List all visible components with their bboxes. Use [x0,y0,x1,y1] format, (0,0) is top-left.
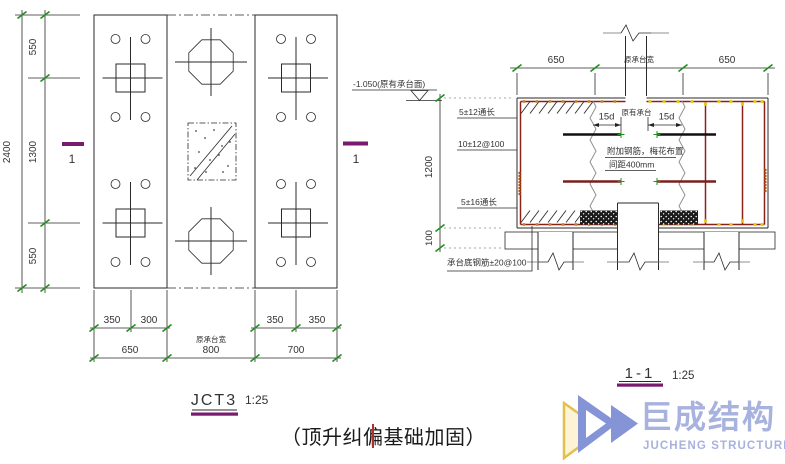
dim-700: 700 [288,345,305,356]
svg-text:原有承台: 原有承台 [622,107,652,117]
logo-subtitle: JUCHENG STRUCTURE [643,440,785,452]
note-added-rebar: 附加钢筋，梅花布置 [607,146,684,156]
note-original-cap-width-plan: 原承台宽 [196,334,226,344]
dim-1200: 1200 [424,155,435,178]
drawing-caption[interactable]: （顶升纠偏基础加固） [281,421,486,450]
plan-title-text: JCT3 [191,392,237,409]
dim-100: 100 [424,230,435,246]
existing-cap-label: 原有承台 [619,107,654,117]
dim-label-2400: 2400 [2,140,13,163]
elevation-marker: -1.050(原有承台面) [352,79,442,101]
section-mark-left: 1 [62,142,84,166]
section-title-text: 1-1 [625,365,656,382]
dim-label-1300: 1300 [28,140,39,163]
dim-15d-right: 15d [659,112,675,123]
dim-350-a: 350 [104,315,121,326]
note-original-cap-width-section: 原承台宽 [624,54,654,64]
dim-label-550-top: 550 [28,38,39,55]
dim-15d-left: 15d [599,112,615,123]
dim-label-550-bottom: 550 [28,247,39,264]
cap-bottom-rebar-callout: 承台底钢筋±20@100 [447,226,532,271]
concrete-speckles [194,129,231,173]
plan-view: 2400 550 1300 550 1 1 [2,10,368,416]
elevation-label: -1.050(原有承台面) [353,79,425,89]
dim-650-right: 650 [719,55,736,66]
anchor-bolt-groups [103,35,329,267]
label-cap-bottom-rebar: 承台底钢筋±20@100 [447,258,527,268]
section-mark-right-label: 1 [353,152,360,166]
logo-name: 巨成结构 [640,401,776,433]
dim-650-left: 650 [548,55,565,66]
label-top-bars: 5±12通长 [459,107,495,117]
section-view: 650 原承台宽 650 -1.050(原有承台面) 1200 100 5±12… [352,25,775,387]
dim-650: 650 [122,345,139,356]
pile-break-symbols [527,253,750,270]
existing-column-section [188,123,236,180]
section-mark-left-label: 1 [69,152,76,166]
dim-350-b: 350 [267,315,284,326]
drawing-canvas: 2400 550 1300 550 1 1 [0,0,785,464]
plan-scale: 1:25 [245,393,269,407]
text-cursor [372,424,374,448]
section-mark-right: 1 [343,142,368,167]
dim-350-c: 350 [309,315,326,326]
note-spacing: 间距400mm [609,160,654,170]
company-logo: 巨成结构 JUCHENG STRUCTURE [560,389,785,464]
added-rebar-note: 附加钢筋，梅花布置 间距400mm [604,145,684,171]
plan-bottom-dimensions: 350 300 350 350 650 原承台宽 800 700 [90,290,342,362]
dim-300: 300 [141,315,158,326]
plan-title: JCT3 1:25 [191,392,269,416]
label-side-bars: 10±12@100 [458,139,505,149]
label-bottom-bars: 5±16通长 [461,197,497,207]
section-title: 1-1 1:25 [617,365,694,387]
logo-mark-icon [560,389,640,464]
dim-800: 800 [203,345,220,356]
rebar-callouts: 5±12通长 10±12@100 5±16通长 [457,107,525,208]
section-scale: 1:25 [672,370,694,382]
section-top-dimension: 650 原承台宽 650 [510,54,775,95]
